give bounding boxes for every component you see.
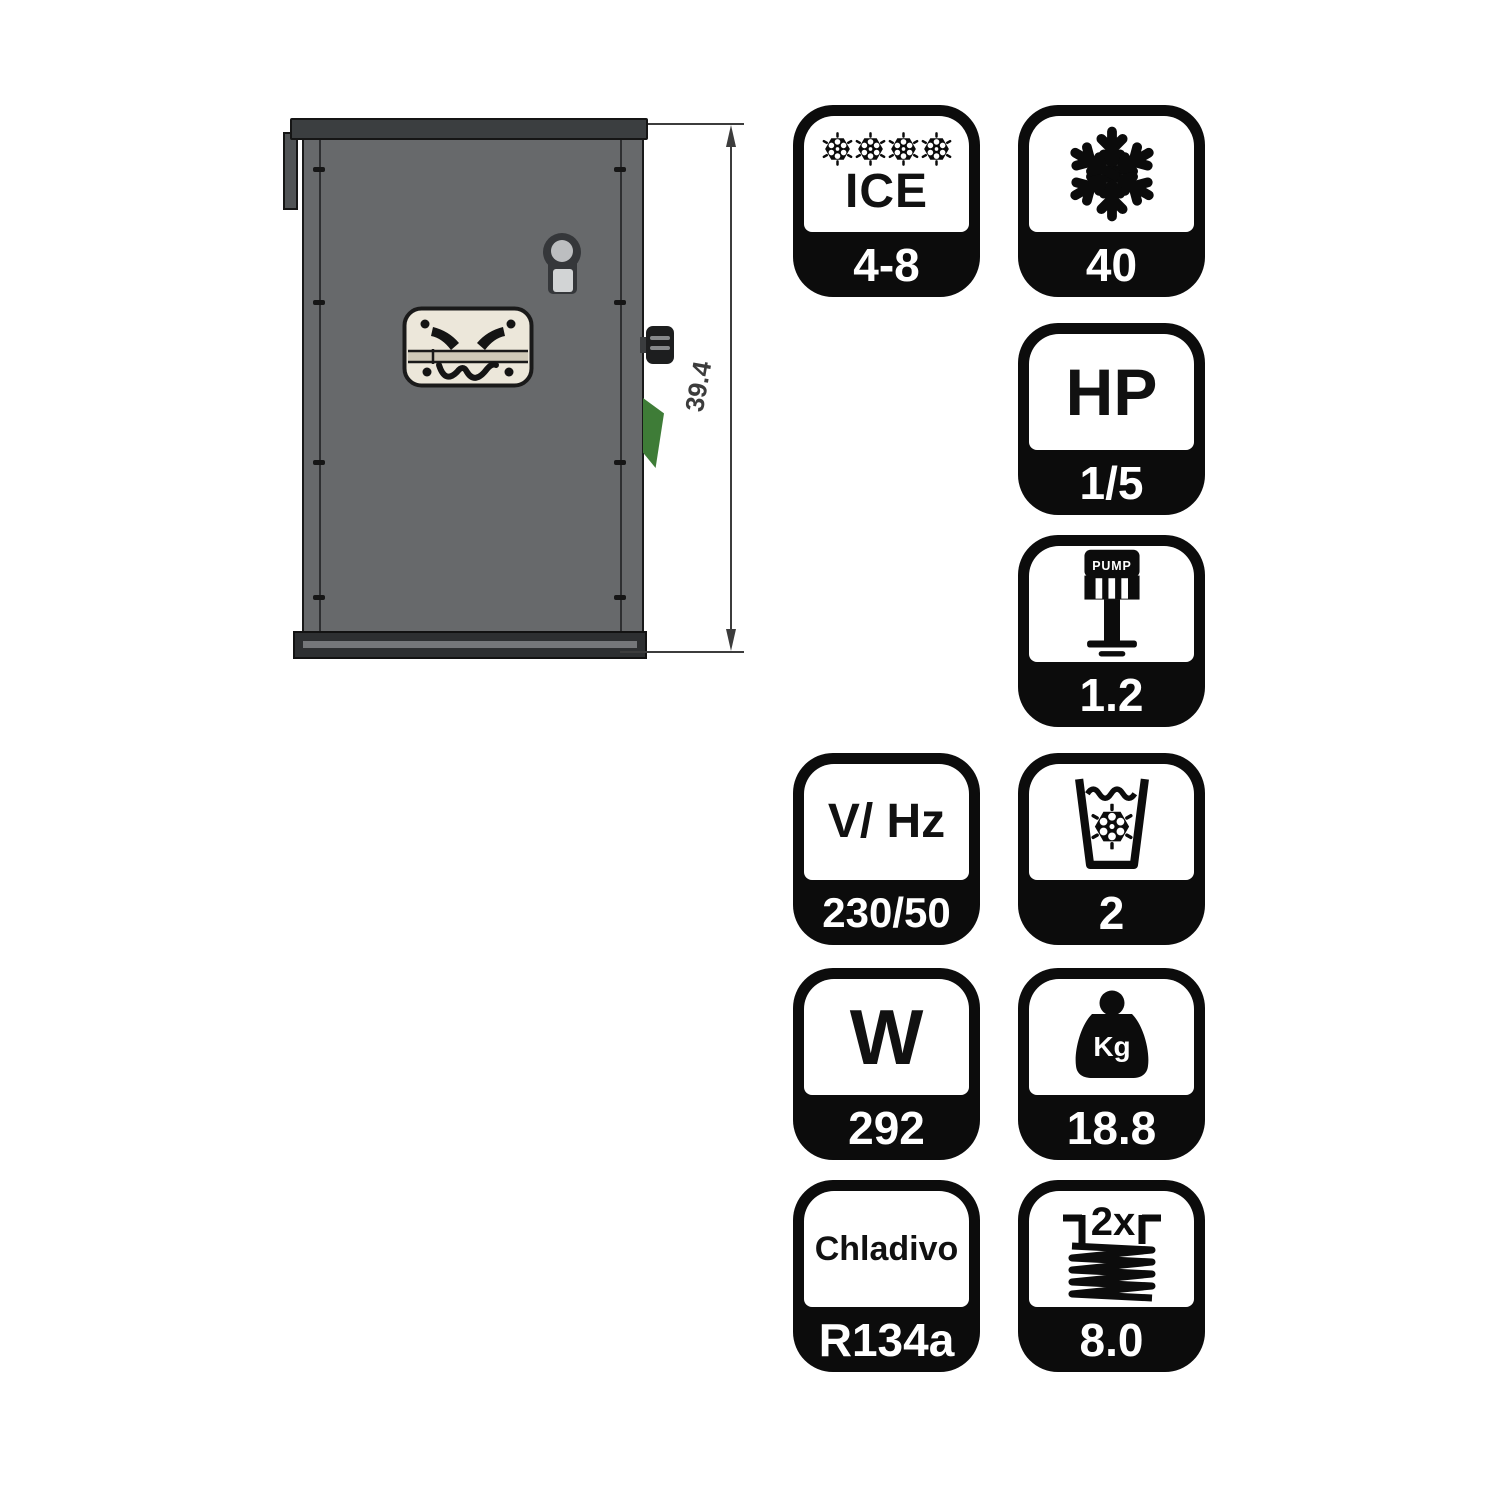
badge-value: R134a <box>793 1307 980 1372</box>
badge-label: Chladivo <box>815 1232 959 1266</box>
badge-top: Kg <box>1029 979 1194 1095</box>
coil-count-label: 2x <box>1091 1200 1136 1244</box>
hinge-face-plate <box>402 306 534 388</box>
kg-weight-icon: Kg <box>1062 989 1162 1085</box>
badge-top: V/ Hz <box>804 764 969 880</box>
spec-sheet: 39.4 ICE 4-8 40 HP 1/5 <box>0 0 1500 1500</box>
badge-voltage-frequency: V/ Hz 230/50 <box>793 753 980 945</box>
badge-value: 4-8 <box>793 232 980 297</box>
panel-seam-left <box>319 140 321 633</box>
badge-net-weight: Kg 18.8 <box>1018 968 1205 1160</box>
machine-base-stripe <box>303 641 637 648</box>
badge-top <box>1029 116 1194 232</box>
dimension-annotation: 39.4 <box>590 105 800 665</box>
badge-power-watts: W 292 <box>793 968 980 1160</box>
badge-top: ICE <box>804 116 969 232</box>
screw-icon <box>313 595 325 600</box>
badge-compressor-power: HP 1/5 <box>1018 323 1205 515</box>
badge-top: PUMP <box>1029 546 1194 662</box>
arrow-down-icon <box>726 629 736 651</box>
badge-top: Chladivo <box>804 1191 969 1307</box>
snowflake-icon <box>1063 125 1161 223</box>
badge-label: W <box>850 998 924 1076</box>
badge-value: 18.8 <box>1018 1095 1205 1160</box>
badge-value: 40 <box>1018 232 1205 297</box>
screw-icon <box>313 167 325 172</box>
badge-condenser-coil: 2x 8.0 <box>1018 1180 1205 1372</box>
badge-top: 2x <box>1029 1191 1194 1307</box>
machine-left-hinge-tab <box>283 132 298 210</box>
pump-label: PUMP <box>1092 559 1132 573</box>
arrow-up-icon <box>726 125 736 147</box>
badge-top: W <box>804 979 969 1095</box>
badge-value: 292 <box>793 1095 980 1160</box>
badge-pump: PUMP 1.2 <box>1018 535 1205 727</box>
kg-label: Kg <box>1093 1031 1130 1062</box>
screw-icon <box>313 300 325 305</box>
badge-daily-production: 40 <box>1018 105 1205 297</box>
badge-value: 2 <box>1018 880 1205 945</box>
lock-keyhole-icon <box>553 269 573 292</box>
coil-icon: 2x <box>1029 1191 1194 1307</box>
screw-icon <box>313 460 325 465</box>
badge-glass-capacity: 2 <box>1018 753 1205 945</box>
lock-keyhole-icon <box>551 240 573 262</box>
badge-value: 230/50 <box>793 880 980 945</box>
badge-ice-cube-size: ICE 4-8 <box>793 105 980 297</box>
dimension-label: 39.4 <box>679 358 717 414</box>
badge-label: HP <box>1066 359 1158 425</box>
badge-top: HP <box>1029 334 1194 450</box>
badge-value: 1/5 <box>1018 450 1205 515</box>
badge-value: 8.0 <box>1018 1307 1205 1372</box>
ice-rosettes-icon <box>821 132 953 166</box>
badge-refrigerant: Chladivo R134a <box>793 1180 980 1372</box>
badge-top <box>1029 764 1194 880</box>
glass-snowflake-icon <box>1070 770 1154 874</box>
badge-value: 1.2 <box>1018 662 1205 727</box>
badge-label: V/ Hz <box>828 798 945 846</box>
pump-icon: PUMP <box>1072 547 1152 661</box>
badge-label: ICE <box>845 168 928 216</box>
